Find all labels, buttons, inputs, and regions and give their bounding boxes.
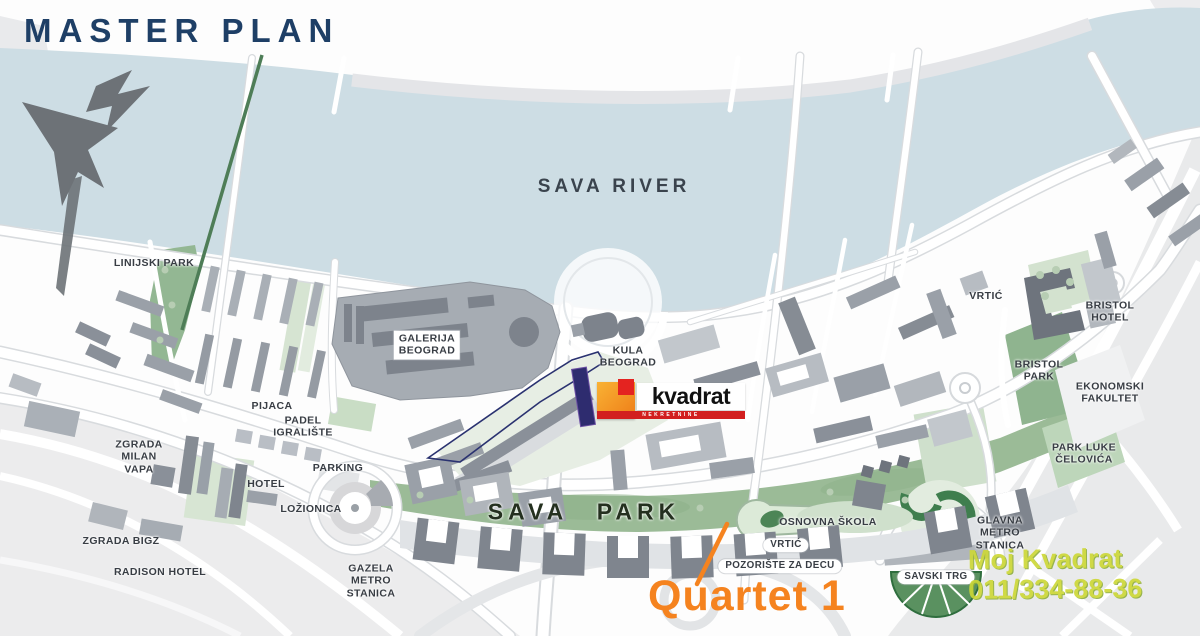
kvadrat-wordmark: kvadrat — [652, 385, 730, 408]
kvadrat-tagline: NEKRETNINE — [597, 411, 745, 419]
quartet-annotation: Quartet 1 — [648, 572, 846, 621]
map-graphics — [0, 0, 1200, 636]
kvadrat-wordmark-box: kvadrat — [637, 383, 745, 410]
watermark-brand: Moj Kvadrat — [968, 543, 1142, 575]
master-plan-map: MASTER PLAN SAVA RIVERLINIJSKI PARKGALER… — [0, 0, 1200, 636]
kvadrat-logo: kvadrat NEKRETNINE — [597, 379, 747, 421]
watermark: Moj Kvadrat 011/334-88-36 — [968, 543, 1143, 605]
page-title: MASTER PLAN — [24, 12, 339, 50]
watermark-phone: 011/334-88-36 — [968, 573, 1142, 605]
kvadrat-logo-red-square-icon — [618, 379, 634, 395]
